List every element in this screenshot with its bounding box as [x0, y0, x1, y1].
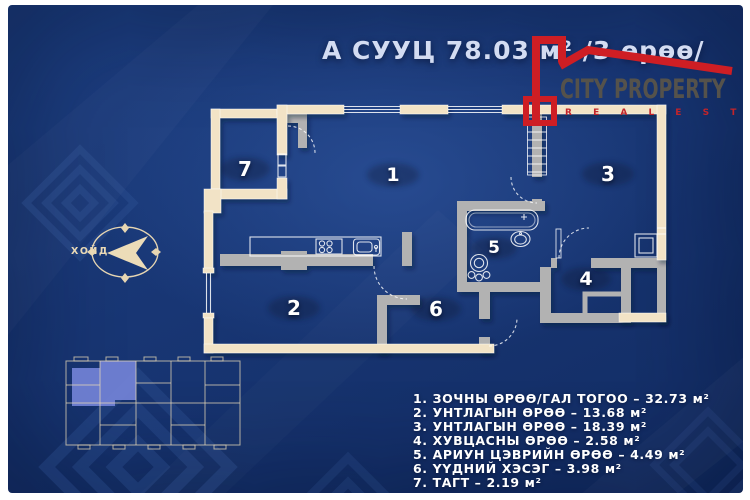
- room-number-7: 7: [238, 157, 252, 181]
- building-thumbnail: [66, 357, 240, 449]
- room-number-6: 6: [429, 297, 443, 321]
- room-number-5: 5: [488, 238, 500, 258]
- poster: А СУУЦ 78.03 м² /3 өрөө/: [0, 0, 750, 500]
- legend-item: 5. АРИУН ЦЭВРИЙН ӨРӨӨ – 4.49 м²: [413, 448, 709, 462]
- room-legend: 1. ЗОЧНЫ ӨРӨӨ/ГАЛ ТОГОО – 32.73 м² 2. УН…: [413, 392, 709, 490]
- legend-item: 6. ҮҮДНИЙ ХЭСЭГ – 3.98 м²: [413, 462, 709, 476]
- legend-item: 7. ТАГТ – 2.19 м²: [413, 476, 709, 490]
- room-number-1: 1: [386, 164, 399, 186]
- room-number-4: 4: [579, 268, 592, 290]
- logo-name: CITY PROPERTY: [560, 76, 726, 103]
- poster-background: А СУУЦ 78.03 м² /3 өрөө/: [8, 5, 743, 493]
- room-number-3: 3: [601, 162, 615, 186]
- legend-item: 3. УНТЛАГЫН ӨРӨӨ – 18.39 м²: [413, 420, 709, 434]
- closet-shelf: [585, 294, 621, 313]
- legend-item: 1. ЗОЧНЫ ӨРӨӨ/ГАЛ ТОГОО – 32.73 м²: [413, 392, 709, 406]
- highlighted-unit: [72, 361, 136, 406]
- logo-tagline: R E A L E S T A T E: [565, 108, 743, 118]
- compass-label: ХОЙД: [71, 246, 109, 257]
- compass-north-arrow-icon: [107, 236, 148, 270]
- legend-item: 2. УНТЛАГЫН ӨРӨӨ – 13.68 м²: [413, 406, 709, 420]
- legend-item: 4. ХУВЦАСНЫ ӨРӨӨ – 2.58 м²: [413, 434, 709, 448]
- room-number-2: 2: [287, 296, 301, 320]
